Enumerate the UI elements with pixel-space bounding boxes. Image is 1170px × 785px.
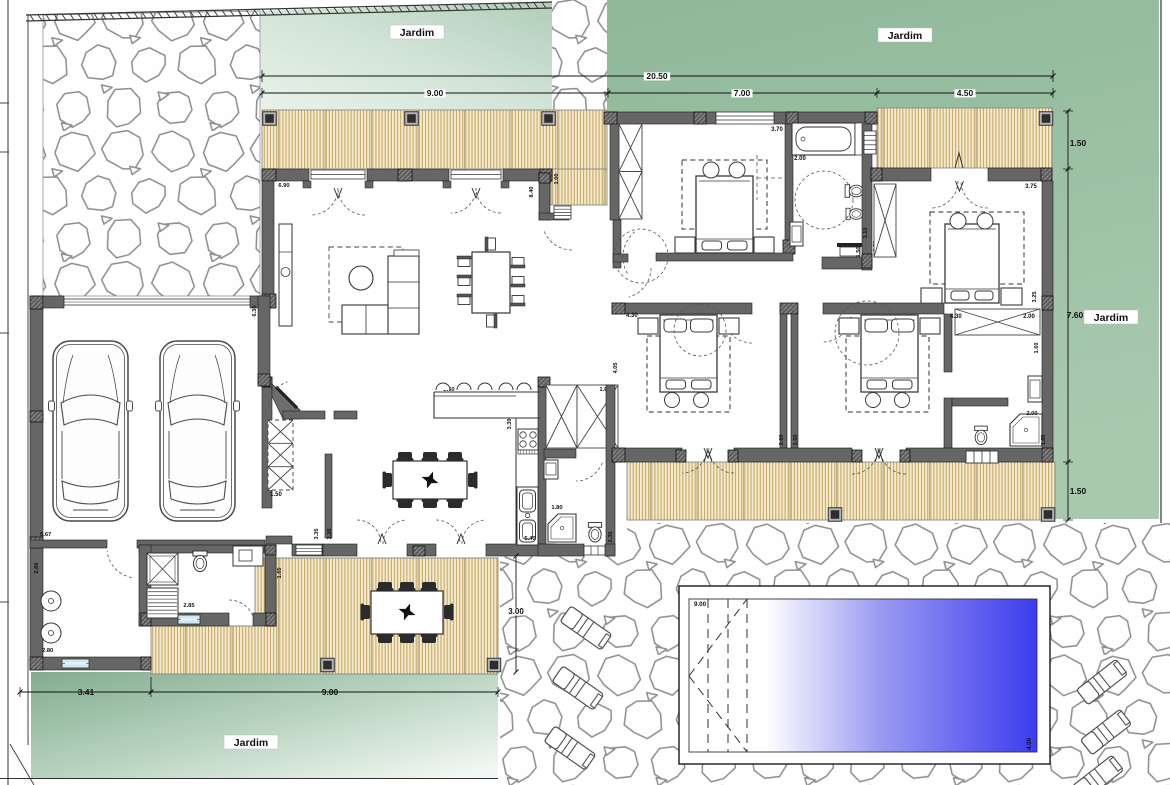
svg-text:4.50: 4.50 [957, 88, 974, 98]
svg-text:2.86: 2.86 [34, 562, 40, 574]
svg-text:1.50: 1.50 [270, 492, 282, 498]
svg-text:5.40: 5.40 [524, 536, 535, 542]
svg-text:1.80: 1.80 [551, 505, 562, 511]
svg-text:7.60: 7.60 [1067, 310, 1084, 320]
svg-text:Jardim: Jardim [1094, 312, 1128, 324]
svg-text:2.85: 2.85 [183, 603, 195, 609]
svg-text:4.00: 4.00 [1026, 737, 1033, 750]
svg-text:3.41: 3.41 [78, 687, 95, 697]
svg-text:3.60: 3.60 [793, 435, 799, 446]
svg-text:1.60: 1.60 [1034, 343, 1040, 354]
svg-text:1.00: 1.00 [554, 174, 560, 185]
svg-text:Jardim: Jardim [400, 27, 434, 39]
svg-text:Jardim: Jardim [888, 30, 922, 42]
svg-text:4.30: 4.30 [950, 314, 962, 320]
svg-text:9.00: 9.00 [427, 88, 444, 98]
svg-text:3.10: 3.10 [863, 228, 869, 239]
svg-text:9.00: 9.00 [322, 687, 339, 697]
svg-text:4.05: 4.05 [613, 363, 619, 374]
svg-text:2.00: 2.00 [1023, 314, 1035, 320]
svg-text:6.90: 6.90 [278, 183, 289, 189]
svg-text:1.50: 1.50 [1070, 138, 1087, 148]
svg-text:3.00: 3.00 [508, 607, 524, 616]
svg-text:8.40: 8.40 [529, 187, 535, 198]
svg-text:2.80: 2.80 [42, 648, 53, 654]
svg-text:3.75: 3.75 [1025, 184, 1037, 190]
svg-text:3.30: 3.30 [507, 419, 513, 430]
svg-text:3.70: 3.70 [771, 127, 783, 133]
svg-text:4.30: 4.30 [626, 313, 638, 319]
svg-text:9.00: 9.00 [694, 601, 707, 608]
svg-text:2.00: 2.00 [1026, 411, 1037, 417]
svg-text:3.35: 3.35 [327, 528, 333, 540]
svg-text:3.60: 3.60 [779, 435, 785, 446]
svg-text:3.35: 3.35 [314, 528, 320, 540]
svg-text:1.65: 1.65 [277, 568, 283, 579]
svg-text:6.30: 6.30 [252, 305, 258, 316]
svg-text:5.67: 5.67 [40, 532, 51, 538]
svg-text:20.50: 20.50 [646, 71, 668, 81]
svg-text:1.85: 1.85 [1041, 435, 1047, 446]
svg-text:2.35: 2.35 [608, 532, 614, 543]
svg-text:Jardim: Jardim [234, 737, 268, 749]
svg-text:3.25: 3.25 [1032, 292, 1038, 303]
svg-text:1.50: 1.50 [856, 247, 862, 258]
svg-text:2.00: 2.00 [794, 156, 806, 162]
svg-text:1.50: 1.50 [1070, 486, 1087, 496]
svg-text:7.00: 7.00 [734, 88, 751, 98]
